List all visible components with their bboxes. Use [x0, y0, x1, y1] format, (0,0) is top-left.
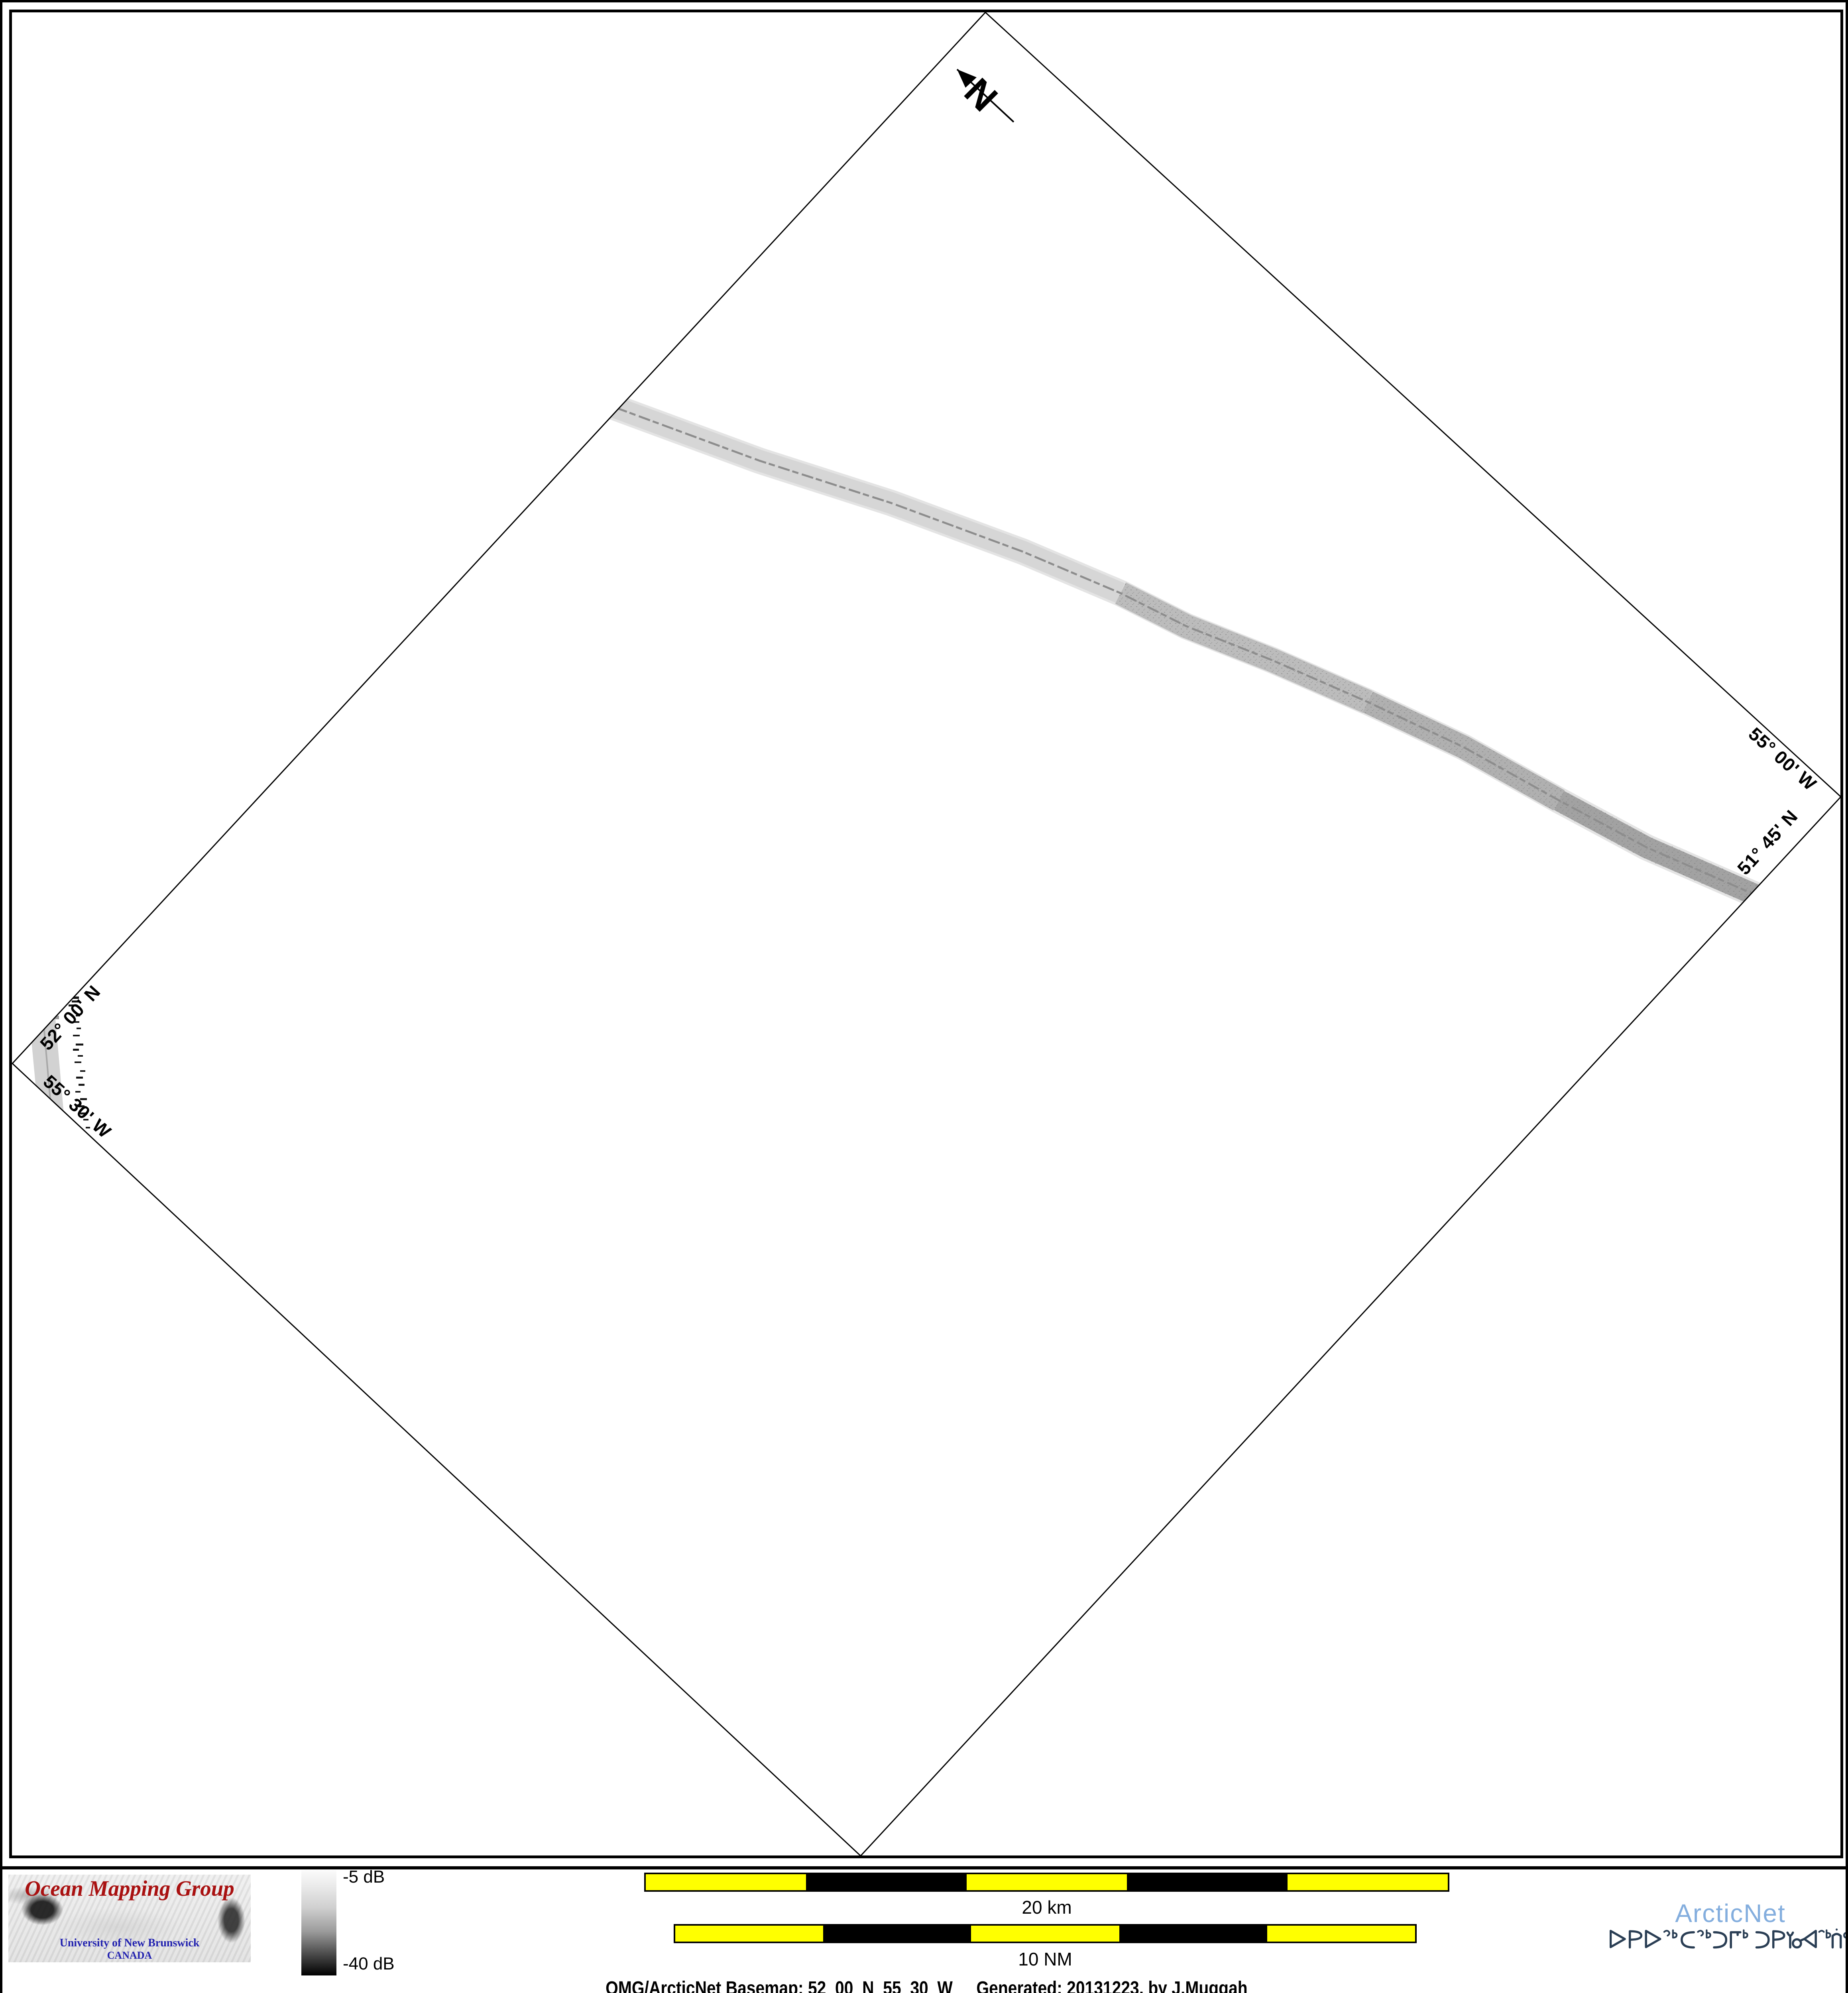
- scalebar-segment: [675, 1926, 823, 1942]
- scalebar-segment: [1127, 1874, 1287, 1890]
- colorbar-min-label: -40 dB: [343, 1954, 395, 1974]
- arcticnet-wordmark: ArcticNet: [1611, 1899, 1848, 1928]
- scalebar-segment: [971, 1926, 1119, 1942]
- scalebar-segment: [823, 1926, 971, 1942]
- scalebar-nm: [674, 1924, 1417, 1943]
- legend-separator-line: [2, 1866, 1848, 1869]
- arcticnet-syllabics-icon: [1610, 1928, 1848, 1950]
- scalebar-nm-label: 10 NM: [1018, 1948, 1072, 1970]
- colorbar-max-label: -5 dB: [343, 1867, 385, 1887]
- unb-university-label: University of New Brunswick: [8, 1937, 251, 1950]
- omg-logo-title: Ocean Mapping Group: [8, 1876, 251, 1901]
- scalebar-segment: [967, 1874, 1127, 1890]
- scalebar-segment: [1267, 1926, 1415, 1942]
- map-sheet: N 55° 00' W 51° 45' N 52° 00' N 55° 30' …: [0, 0, 1848, 1993]
- sheet-caption: OMG/ArcticNet Basemap: 52_00_N_55_30_WGe…: [2, 1977, 1848, 1993]
- backscatter-colorbar: [301, 1870, 336, 1975]
- omg-unb-logo: Ocean Mapping Group University of New Br…: [8, 1875, 251, 1962]
- scalebar-segment: [1288, 1874, 1448, 1890]
- scalebar-segment: [1119, 1926, 1267, 1942]
- unb-country-label: CANADA: [8, 1950, 251, 1962]
- caption-generated: Generated: 20131223, by J.Muggah: [976, 1978, 1247, 1993]
- scalebar-km: [644, 1873, 1449, 1892]
- survey-sheet-outline: [12, 12, 1841, 1856]
- swath-segment-light: [606, 404, 1121, 593]
- caption-basemap-id: OMG/ArcticNet Basemap: 52_00_N_55_30_W: [606, 1978, 953, 1993]
- scalebar-segment: [806, 1874, 966, 1890]
- map-canvas: [2, 2, 1848, 1993]
- scalebar-segment: [646, 1874, 806, 1890]
- sonar-swath-group: [29, 404, 1776, 1145]
- scalebar-km-label: 20 km: [1022, 1897, 1071, 1918]
